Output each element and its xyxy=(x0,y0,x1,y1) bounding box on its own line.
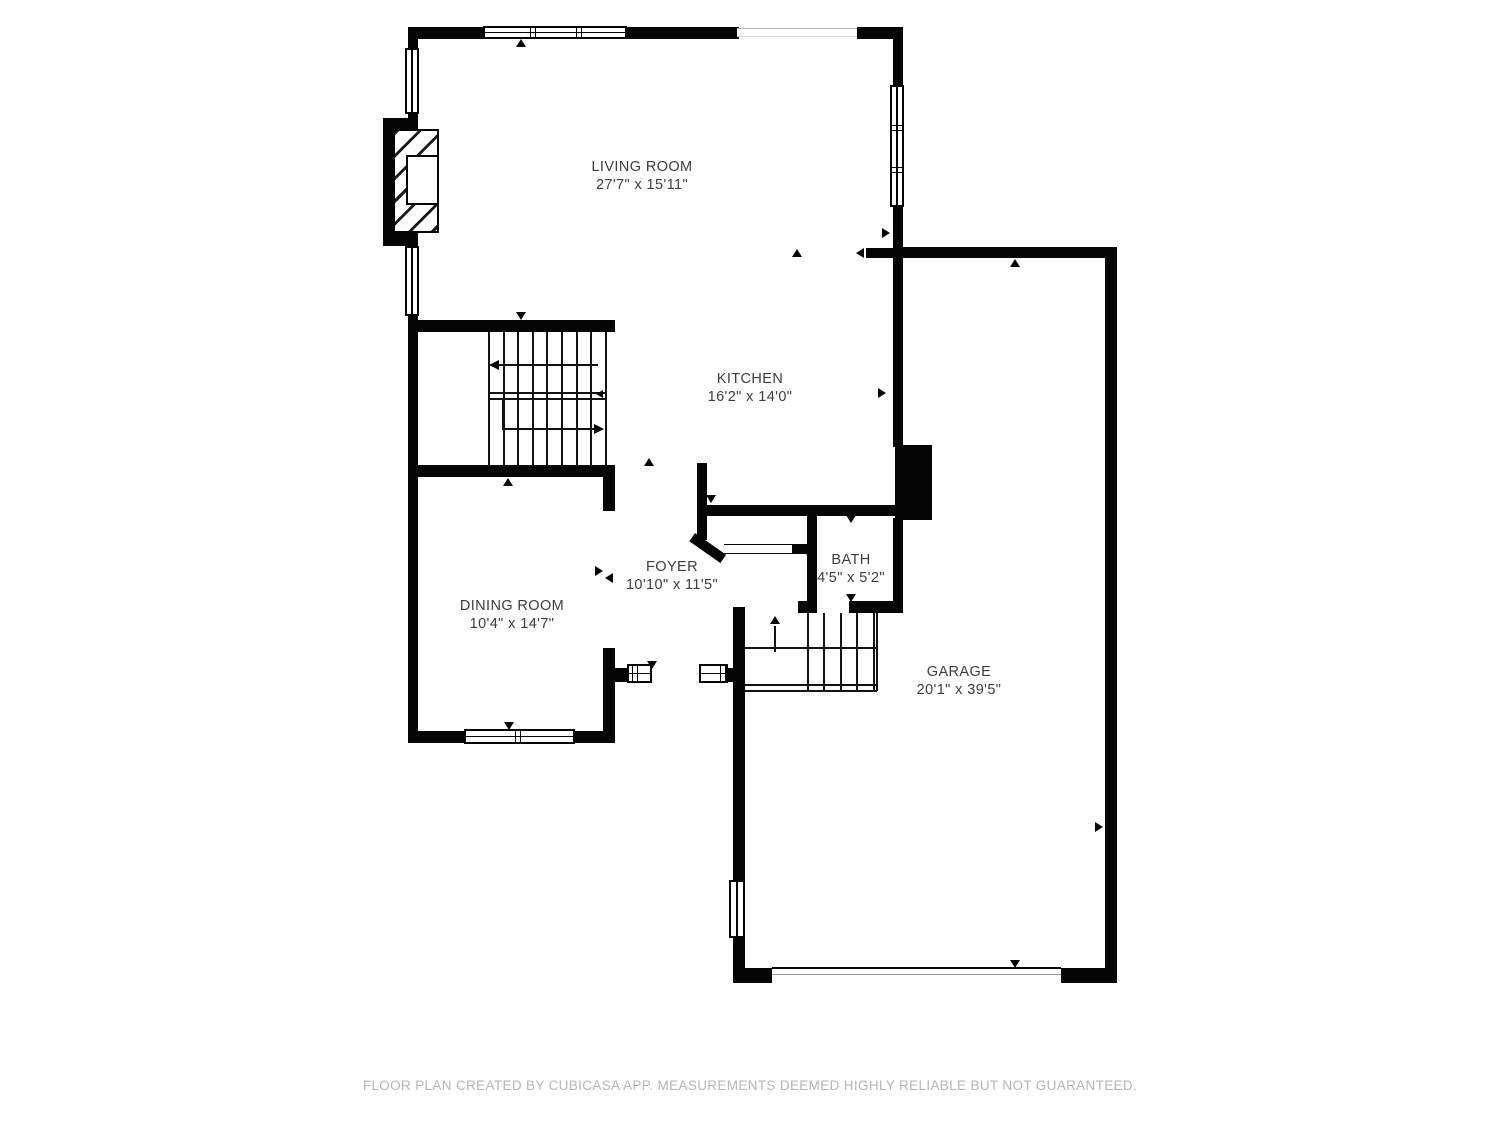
window xyxy=(729,880,745,938)
wall-segment xyxy=(625,27,739,39)
door-arrow-icon xyxy=(647,661,657,669)
door-arrow-icon xyxy=(846,594,856,602)
door-arrow-icon xyxy=(737,822,745,832)
fireplace-firebox xyxy=(406,155,439,205)
room-label-garage: GARAGE 20'1" x 39'5" xyxy=(849,663,1069,699)
sidelight-window xyxy=(699,664,728,683)
stair-up-arrow-icon xyxy=(489,360,499,370)
wall-segment xyxy=(408,27,486,39)
room-label-dining-room: DINING ROOM 10'4" x 14'7" xyxy=(402,597,622,633)
wall-segment xyxy=(733,968,772,983)
wall-segment xyxy=(408,731,466,743)
door-arrow-icon xyxy=(878,388,886,398)
room-name: BATH xyxy=(741,551,961,569)
window xyxy=(405,246,419,316)
garage-door-opening xyxy=(772,967,1061,975)
door-arrow-icon xyxy=(1010,259,1020,267)
wall-segment xyxy=(733,607,745,884)
door-arrow-icon xyxy=(792,249,802,257)
door-arrow-icon xyxy=(516,312,526,320)
stair-down-arrow-icon xyxy=(594,424,604,434)
door-arrow-icon xyxy=(644,458,654,466)
room-dimensions: 20'1" x 39'5" xyxy=(849,681,1069,699)
wall-segment xyxy=(1105,247,1117,983)
door-arrow-icon xyxy=(846,515,856,523)
wall-segment xyxy=(697,505,898,516)
room-dimensions: 27'7" x 15'11" xyxy=(532,176,752,194)
stair-arrow-line xyxy=(502,399,504,430)
door-arrow-icon xyxy=(882,228,890,238)
door-arrow-icon xyxy=(706,495,716,503)
door-arrow-icon xyxy=(504,722,514,730)
step-line xyxy=(823,613,825,691)
stair-landing-line xyxy=(488,392,606,394)
room-label-bath: BATH 4'5" x 5'2" xyxy=(741,551,961,587)
door-arrow-icon xyxy=(1010,960,1020,968)
wall-segment xyxy=(893,27,903,87)
window xyxy=(483,26,627,39)
room-name: GARAGE xyxy=(849,663,1069,681)
wall-opening xyxy=(737,28,857,37)
stair-arrow-line xyxy=(498,364,598,366)
step-line xyxy=(807,613,809,691)
room-name: DINING ROOM xyxy=(402,597,622,615)
room-name: LIVING ROOM xyxy=(532,158,752,176)
window xyxy=(464,729,575,744)
window xyxy=(890,85,904,207)
wall-segment xyxy=(849,601,903,613)
wall-segment xyxy=(603,465,615,511)
door-arrow-icon xyxy=(516,39,526,47)
step-line xyxy=(745,647,877,649)
wall-segment xyxy=(408,465,615,477)
room-name: KITCHEN xyxy=(640,370,860,388)
room-dimensions: 4'5" x 5'2" xyxy=(741,569,961,587)
wall-segment xyxy=(603,648,615,742)
room-label-kitchen: KITCHEN 16'2" x 14'0" xyxy=(640,370,860,406)
step-up-arrow-icon xyxy=(770,616,780,624)
floor-plan: LIVING ROOM 27'7" x 15'11" KITCHEN 16'2"… xyxy=(0,0,1500,1125)
room-label-living-room: LIVING ROOM 27'7" x 15'11" xyxy=(532,158,752,194)
chimney-block xyxy=(895,445,932,520)
stair-arrow-line xyxy=(502,428,596,430)
wall-segment xyxy=(866,248,893,258)
stair-landing-line xyxy=(488,398,606,400)
window xyxy=(405,48,419,114)
door-arrow-icon xyxy=(503,478,513,486)
room-dimensions: 10'4" x 14'7" xyxy=(402,615,622,633)
stair-direction-arrow-icon xyxy=(596,390,603,398)
door-arrow-icon xyxy=(1095,822,1103,832)
wall-segment xyxy=(573,731,615,743)
step-arrow-line xyxy=(774,626,776,652)
wall-segment xyxy=(408,315,418,742)
step-line xyxy=(840,613,842,691)
wall-segment xyxy=(408,320,615,332)
room-dimensions: 16'2" x 14'0" xyxy=(640,388,860,406)
disclaimer-text: FLOOR PLAN CREATED BY CUBICASA APP. MEAS… xyxy=(0,1078,1500,1093)
door-arrow-icon xyxy=(410,565,418,575)
wall-segment xyxy=(893,205,903,447)
wall-end-arrow-icon xyxy=(856,248,864,258)
wall-segment xyxy=(798,601,817,613)
wall-segment xyxy=(893,247,1117,258)
